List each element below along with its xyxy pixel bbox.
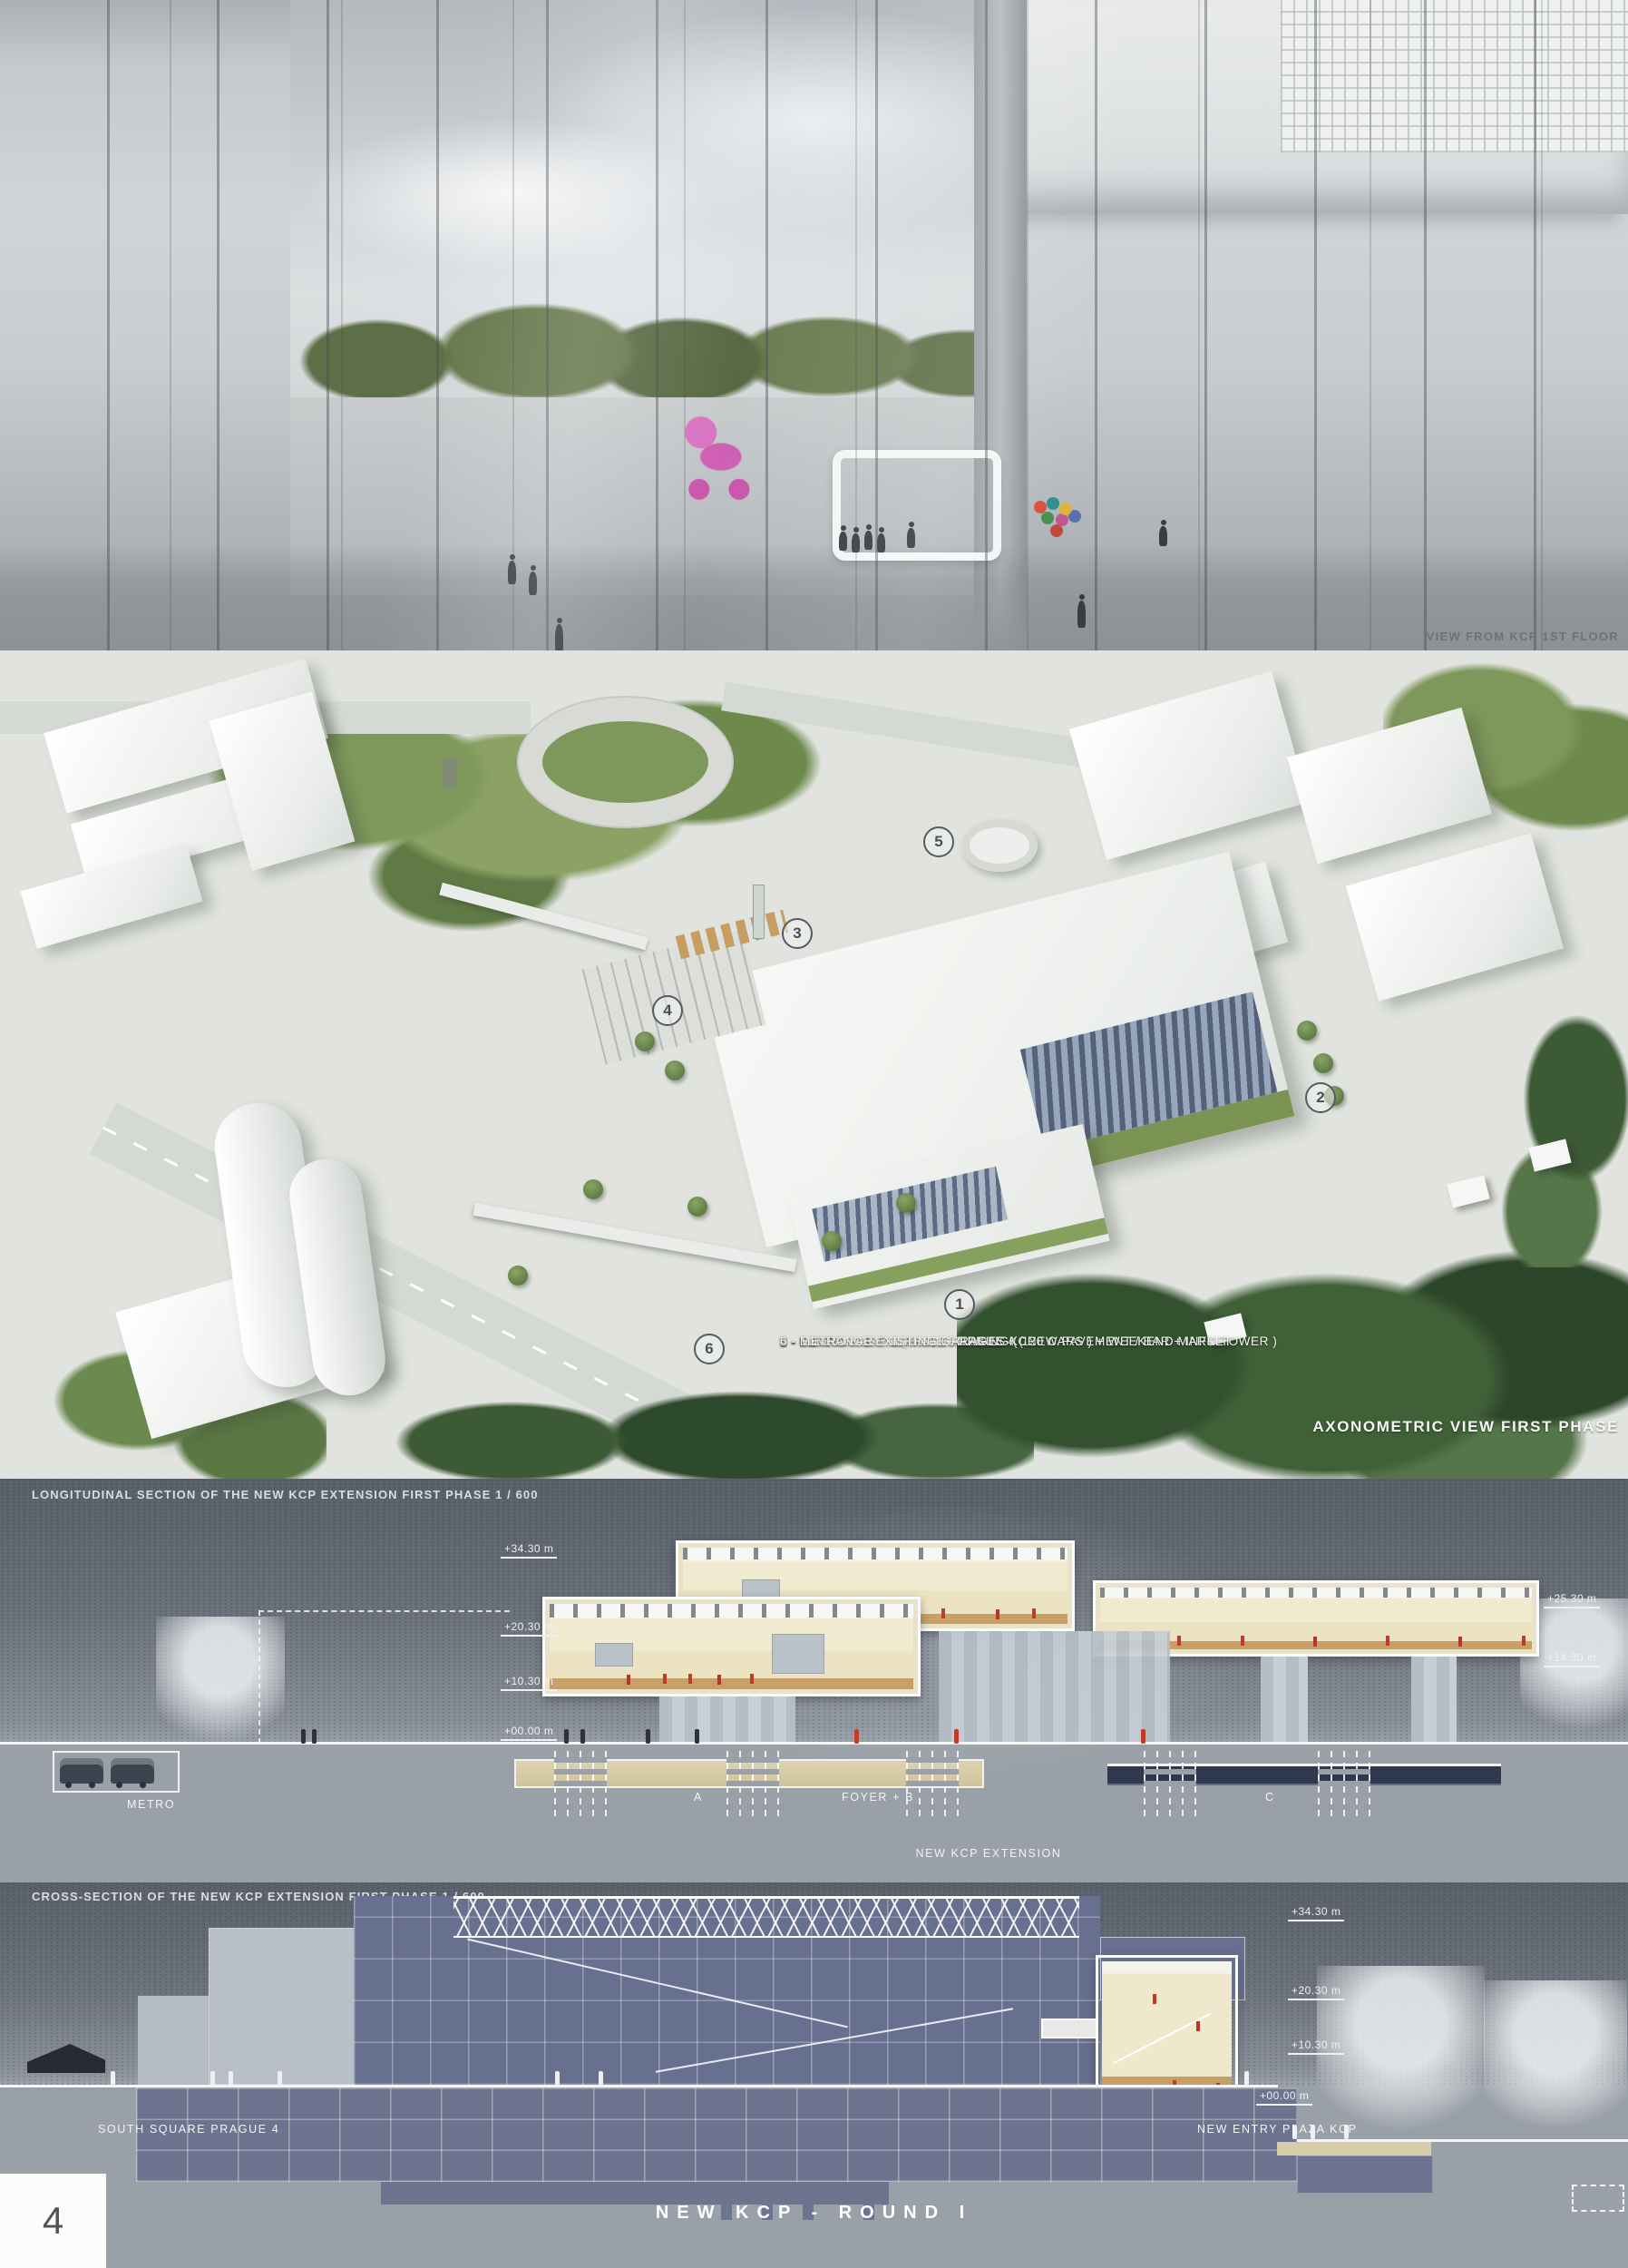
marker-4: 4 <box>652 995 683 1026</box>
existing-kcp-section <box>354 1896 1100 2085</box>
elevation-2030: +20.30 m <box>501 1620 557 1637</box>
tree <box>822 1231 842 1251</box>
section-grid-dashes <box>906 1751 959 1816</box>
context-building <box>209 1928 356 2085</box>
extension-interior <box>1102 1961 1232 2098</box>
elevation-3430: +34.30 m <box>501 1542 557 1559</box>
support-pier <box>1411 1657 1457 1744</box>
city-block <box>1069 671 1309 860</box>
tree <box>687 1197 707 1217</box>
board-title: NEW KCP - ROUND I <box>0 2203 1628 2224</box>
marker-1: 1 <box>944 1289 975 1320</box>
label-south-square: SOUTH SQUARE PRAGUE 4 <box>98 2123 279 2136</box>
label-new-kcp-extension: NEW KCP EXTENSION <box>880 1847 1097 1860</box>
person-silhouette-red <box>1141 1729 1145 1744</box>
marker-2: 2 <box>1305 1082 1336 1113</box>
pedestrian-bridge <box>473 1203 797 1272</box>
axonometric-panel: 1 2 3 4 5 6 1 - NEW EXHIBITION HALL KCP … <box>0 650 1628 1479</box>
support-pier <box>1261 1657 1308 1744</box>
label-zone-c: C <box>1265 1791 1275 1804</box>
info-tower <box>753 885 765 939</box>
glass-reflection <box>0 0 1628 650</box>
tree <box>583 1179 603 1199</box>
person-silhouette <box>646 1729 650 1744</box>
section-grid-dashes <box>726 1751 779 1816</box>
red-figures <box>1177 1636 1181 1646</box>
tree <box>1297 1021 1317 1041</box>
metro-train <box>111 1758 154 1784</box>
elevation-2030: +20.30 m <box>1288 1984 1344 2000</box>
tree <box>635 1031 655 1051</box>
underground-level-right <box>1297 2156 1433 2194</box>
label-foyer-b: FOYER + B <box>828 1791 928 1804</box>
elevation-1430: +14.30 m <box>1544 1651 1600 1667</box>
dashed-outline <box>258 1610 510 1612</box>
render-caption: VIEW FROM KCP 1ST FLOOR <box>1306 630 1619 643</box>
red-figures <box>1153 1994 1156 2004</box>
person-silhouette <box>278 2071 282 2086</box>
longitudinal-section-panel: LONGITUDINAL SECTION OF THE NEW KCP EXTE… <box>0 1479 1628 1882</box>
tree <box>1313 1053 1333 1073</box>
person-silhouette <box>111 2071 115 2086</box>
person-silhouette <box>555 2071 560 2086</box>
statue <box>443 758 457 788</box>
marker-6: 6 <box>694 1334 725 1364</box>
central-core-pier <box>939 1631 1170 1744</box>
page-number-box: 4 <box>0 2174 106 2268</box>
section-linework <box>136 2087 1297 2182</box>
elevation-0000: +00.00 m <box>1256 2089 1312 2106</box>
tree-silhouette <box>156 1617 285 1755</box>
person-silhouette <box>599 2071 603 2086</box>
section-grid-dashes <box>1318 1751 1370 1816</box>
city-block <box>1346 833 1564 1001</box>
roof-truss <box>453 1896 1079 1938</box>
elevation-1030: +10.30 m <box>1288 2038 1344 2055</box>
person-silhouette-red <box>954 1729 959 1744</box>
underground-deep-level <box>381 2182 889 2204</box>
section-grid-dashes <box>554 1751 607 1816</box>
person-silhouette <box>564 1729 569 1744</box>
person-silhouette <box>210 2071 215 2086</box>
forest-east-edge <box>1501 986 1628 1267</box>
person-silhouette <box>301 1729 306 1744</box>
person-silhouette-red <box>854 1729 859 1744</box>
link-bridge <box>1041 2019 1097 2038</box>
section-grid-dashes <box>1144 1751 1196 1816</box>
marker-3: 3 <box>782 918 813 949</box>
garage-entrance-building <box>961 819 1038 872</box>
stage-equipment <box>772 1634 824 1674</box>
legend-line: 6 - METRO <box>780 1333 847 1350</box>
page-number: 4 <box>43 2199 63 2243</box>
stage-equipment <box>595 1643 633 1667</box>
elevation-0000: +00.00 m <box>501 1725 557 1741</box>
label-zone-a: A <box>694 1791 703 1804</box>
tree <box>896 1193 916 1213</box>
elevation-1030: +10.30 m <box>501 1675 557 1691</box>
marker-5: 5 <box>923 826 954 857</box>
house-in-forest <box>1447 1175 1489 1207</box>
tree-silhouette <box>1484 1980 1627 2146</box>
render-view-panel: VIEW FROM KCP 1ST FLOOR <box>0 0 1628 650</box>
red-figures <box>663 1674 667 1684</box>
person-silhouette <box>695 1729 699 1744</box>
context-building <box>138 1996 210 2085</box>
longitudinal-section-title: LONGITUDINAL SECTION OF THE NEW KCP EXTE… <box>32 1488 539 1501</box>
person-silhouette <box>229 2071 233 2086</box>
roundabout <box>519 698 732 826</box>
metro-train <box>60 1758 103 1784</box>
elevation-2530: +25.30 m <box>1544 1592 1600 1608</box>
tree <box>508 1266 528 1286</box>
new-extension-section <box>1096 1955 1238 2105</box>
lower-hall-section <box>542 1597 921 1696</box>
ground-line <box>0 1742 1628 1745</box>
axon-caption: AXONOMETRIC VIEW FIRST PHASE <box>780 1418 1619 1436</box>
person-silhouette <box>312 1729 317 1744</box>
label-metro: METRO <box>127 1798 175 1811</box>
presentation-board: VIEW FROM KCP 1ST FLOOR <box>0 0 1628 2268</box>
person-silhouette <box>580 1729 585 1744</box>
underground-levels <box>136 2087 1297 2182</box>
person-silhouette <box>1244 2071 1249 2086</box>
elevation-3430: +34.30 m <box>1288 1905 1344 1921</box>
label-entry-plaza: NEW ENTRY PLAZA KCP <box>1197 2123 1358 2136</box>
tree <box>665 1061 685 1080</box>
support-pier <box>659 1696 795 1744</box>
